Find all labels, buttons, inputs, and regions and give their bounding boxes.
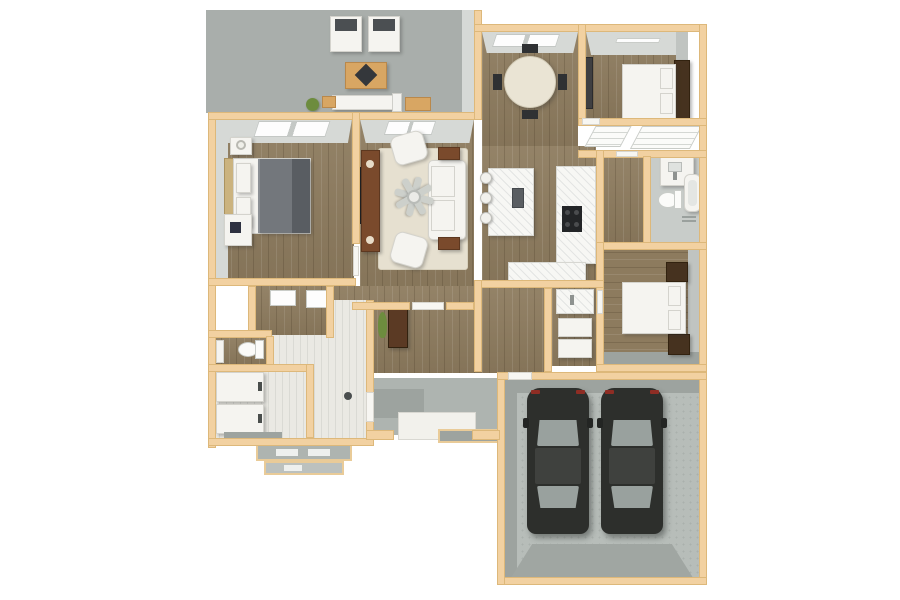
exterior-wall-north <box>474 24 707 32</box>
wall-kitchen-south <box>474 280 604 288</box>
bar-stool <box>480 192 492 204</box>
kitchen-island <box>488 168 534 236</box>
wall-porch-stub-east <box>472 430 500 440</box>
garage-entry-door <box>508 372 532 380</box>
tub-basin <box>688 180 697 206</box>
wall-laundry-west <box>544 288 552 372</box>
wall-bedroom3-south <box>596 364 707 372</box>
bedroom3-pillow <box>668 286 681 306</box>
dining-chair <box>522 44 538 53</box>
wall-hall-south-a <box>352 302 410 310</box>
car <box>527 388 589 534</box>
bedroom2-north-wall-face <box>586 32 688 55</box>
bedroom3-nightstand <box>668 334 690 355</box>
wall-masterbath-east <box>306 364 314 438</box>
wall-patio-south <box>208 112 482 120</box>
linen-shelf <box>216 340 224 363</box>
wall-hall-south-b <box>446 302 474 310</box>
pendant-light <box>344 392 352 400</box>
wall-master-living <box>352 112 360 244</box>
console-decor <box>366 160 374 168</box>
shower-door-handle <box>258 382 262 391</box>
entry-hutch <box>388 306 408 348</box>
hall-window <box>306 290 328 308</box>
shower-unit <box>216 404 264 434</box>
laundry-faucet <box>570 295 574 305</box>
shower-drain <box>682 216 696 218</box>
closet-shelving <box>584 126 631 147</box>
table-lamp <box>236 140 246 150</box>
wall-kitchen-hall <box>596 150 604 250</box>
bathroom-door <box>616 151 638 157</box>
patio-side-table <box>405 97 431 111</box>
garage-left-face <box>505 380 517 578</box>
car <box>601 388 663 534</box>
closet-window <box>270 290 296 306</box>
patio-column <box>392 93 402 112</box>
car-mirror <box>523 418 529 428</box>
wall-bathroom-west <box>643 156 651 246</box>
car-windshield <box>537 420 579 446</box>
wall-dining-bedroom2 <box>578 24 586 120</box>
master-window <box>253 121 330 137</box>
ceiling-fan <box>392 175 436 219</box>
shower-door-handle <box>258 414 262 423</box>
car-rear-window <box>537 486 579 508</box>
bedroom3-pillow <box>668 310 681 330</box>
car-roof <box>609 448 655 484</box>
bedroom2-window <box>615 38 661 43</box>
car-mirror <box>661 418 667 428</box>
bedroom2-pillow <box>660 68 673 89</box>
burner <box>565 210 570 215</box>
vanity-sink <box>668 162 682 172</box>
bedroom2-door <box>582 118 600 125</box>
step-tread <box>276 449 298 456</box>
dresser-decor <box>230 222 241 233</box>
wall-closet-east <box>326 286 334 338</box>
wall-porch-stub-west <box>366 430 394 440</box>
garage-wall-south <box>497 577 707 585</box>
car-roof <box>535 448 581 484</box>
burner <box>574 210 579 215</box>
dining-chair <box>493 74 502 90</box>
burner <box>565 222 570 227</box>
wall-toilet-north <box>208 330 272 338</box>
car-tail-light <box>605 390 614 394</box>
washer <box>558 318 592 337</box>
wall-hall-garage-west <box>474 280 482 372</box>
wall-entry-south <box>208 438 374 446</box>
dining-chair <box>558 74 567 90</box>
potted-plant <box>306 98 319 111</box>
car-tail-light <box>531 390 540 394</box>
side-table <box>438 237 460 250</box>
bedroom3-nightstand <box>666 262 688 282</box>
bar-stool <box>480 212 492 224</box>
island-sink <box>512 188 524 208</box>
car-windshield <box>611 420 653 446</box>
hall-cased-opening <box>412 302 444 310</box>
tall-plant <box>378 312 387 338</box>
entry-steps-upper <box>256 444 352 461</box>
shower-unit <box>216 372 264 402</box>
bar-stool <box>480 172 492 184</box>
wall-masterbath-north <box>208 364 312 372</box>
side-table <box>438 147 460 160</box>
car-tail-light <box>576 390 585 394</box>
closet-shelving <box>630 126 702 149</box>
wall-bedroom3-north <box>596 242 707 250</box>
driveway-apron <box>505 544 699 578</box>
front-door <box>366 392 374 422</box>
floor-plan-render <box>0 0 900 600</box>
console-decor <box>366 236 374 244</box>
step-tread <box>308 449 330 456</box>
fan-hub <box>407 190 421 204</box>
master-pillow <box>236 163 251 193</box>
bedroom2-headboard <box>674 60 690 122</box>
master-door <box>353 246 359 276</box>
dryer <box>558 339 592 358</box>
wall-master-south <box>208 278 356 286</box>
dining-table <box>504 56 556 108</box>
patio-east-wall-face <box>462 10 474 113</box>
car-mirror <box>597 418 603 428</box>
entry-steps-lower <box>264 461 344 475</box>
laundry-sink-counter <box>556 289 594 314</box>
patio-bench <box>332 95 398 110</box>
patio-chair-cushion <box>373 19 395 31</box>
exterior-wall-east <box>699 24 707 585</box>
toilet-tank <box>255 340 264 359</box>
dining-chair <box>522 110 538 119</box>
patio-chair-cushion <box>335 19 357 31</box>
toilet-tank <box>674 190 682 209</box>
plant-stand <box>322 96 336 108</box>
duvet-fold-band <box>292 159 310 233</box>
step-tread <box>284 465 302 471</box>
faucet <box>673 172 677 180</box>
garage-wall-west <box>497 372 505 585</box>
car-mirror <box>587 418 593 428</box>
bedroom3-door <box>597 290 603 314</box>
bedroom2-pillow <box>660 93 673 114</box>
car-rear-window <box>611 486 653 508</box>
burner <box>574 222 579 227</box>
car-tail-light <box>650 390 659 394</box>
